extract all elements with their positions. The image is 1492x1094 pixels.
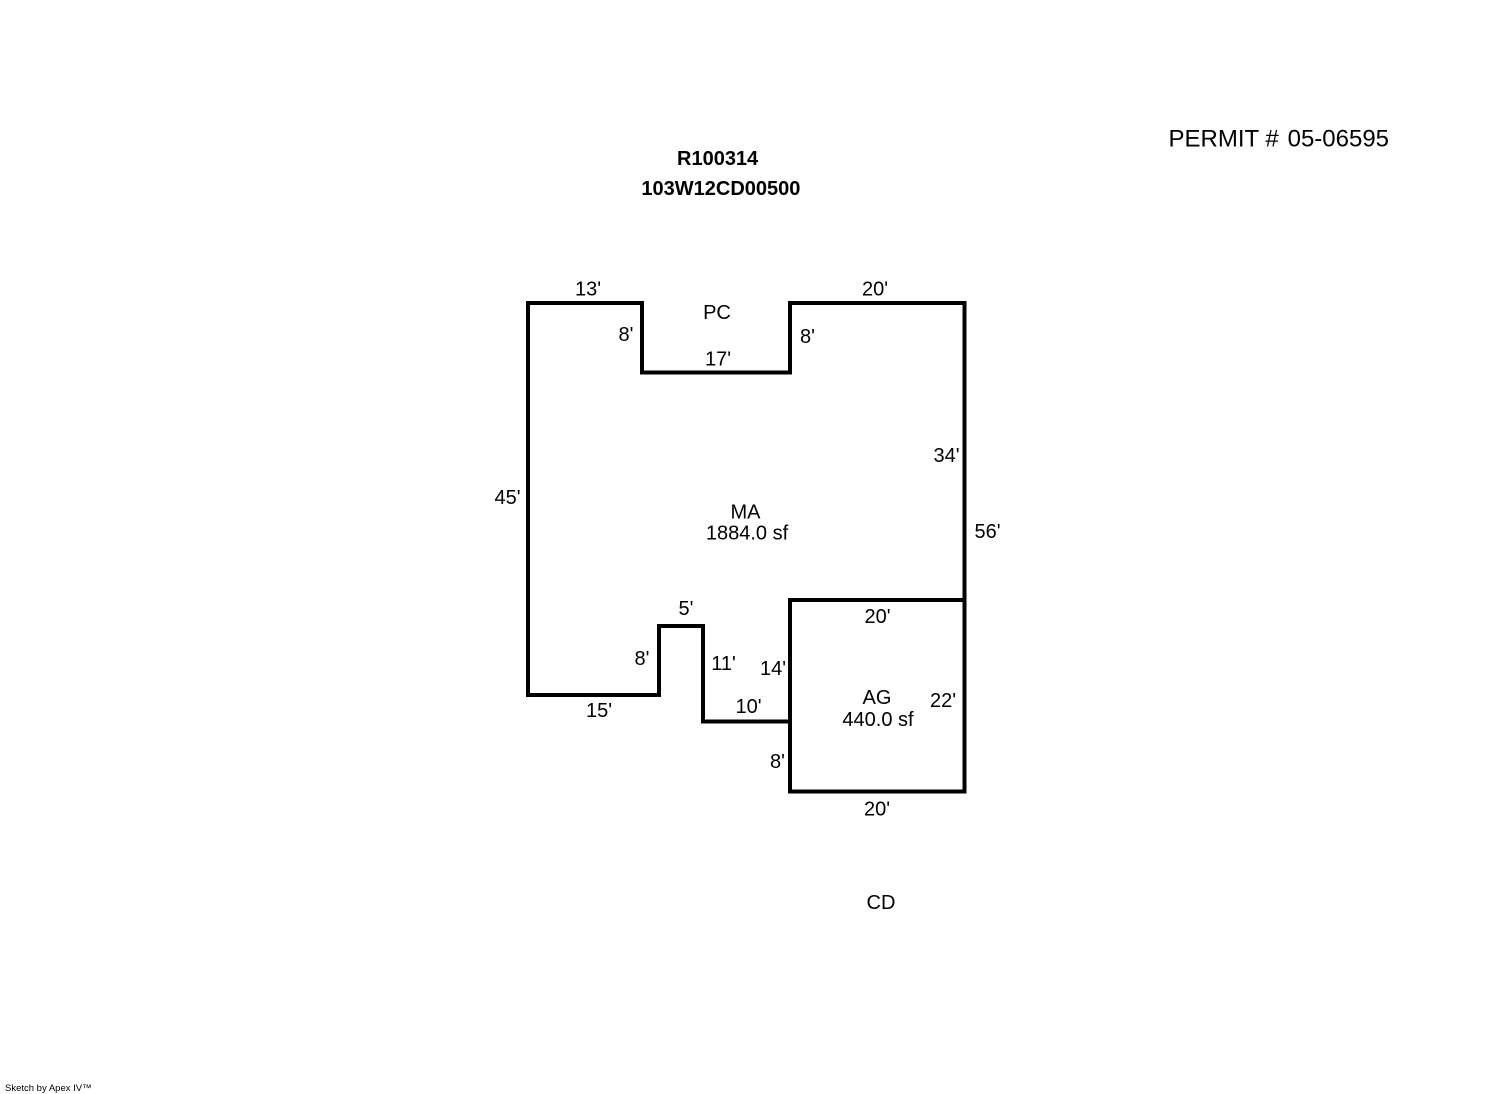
svg-text:20': 20' [862,279,888,301]
svg-text:11': 11' [711,653,736,675]
svg-text:8': 8' [800,326,815,348]
svg-text:10': 10' [735,696,761,718]
svg-text:5': 5' [679,598,694,620]
svg-text:440.0 sf: 440.0 sf [842,709,914,731]
svg-text:56': 56' [974,521,1000,543]
svg-text:AG: AG [863,687,892,709]
svg-text:103W12CD00500: 103W12CD00500 [641,178,800,200]
svg-text:14': 14' [760,658,786,680]
svg-text:34': 34' [933,445,959,467]
svg-text:8': 8' [770,751,785,773]
svg-text:17': 17' [705,349,731,371]
svg-text:8': 8' [619,324,634,346]
svg-text:PC: PC [703,302,731,324]
svg-text:MA: MA [731,502,762,524]
svg-text:R100314: R100314 [677,148,759,170]
svg-text:CD: CD [867,892,896,914]
svg-text:22': 22' [930,690,956,712]
svg-text:20': 20' [864,799,890,821]
svg-text:8': 8' [635,648,650,670]
svg-text:1884.0 sf: 1884.0 sf [706,523,789,545]
svg-text:05-06595: 05-06595 [1288,126,1389,153]
svg-text:PERMIT #: PERMIT # [1169,126,1280,153]
svg-text:20': 20' [864,606,890,628]
svg-text:15': 15' [586,700,612,722]
svg-text:45': 45' [494,487,520,509]
svg-text:13': 13' [575,278,601,300]
svg-text:Sketch by Apex IV™: Sketch by Apex IV™ [5,1083,92,1094]
